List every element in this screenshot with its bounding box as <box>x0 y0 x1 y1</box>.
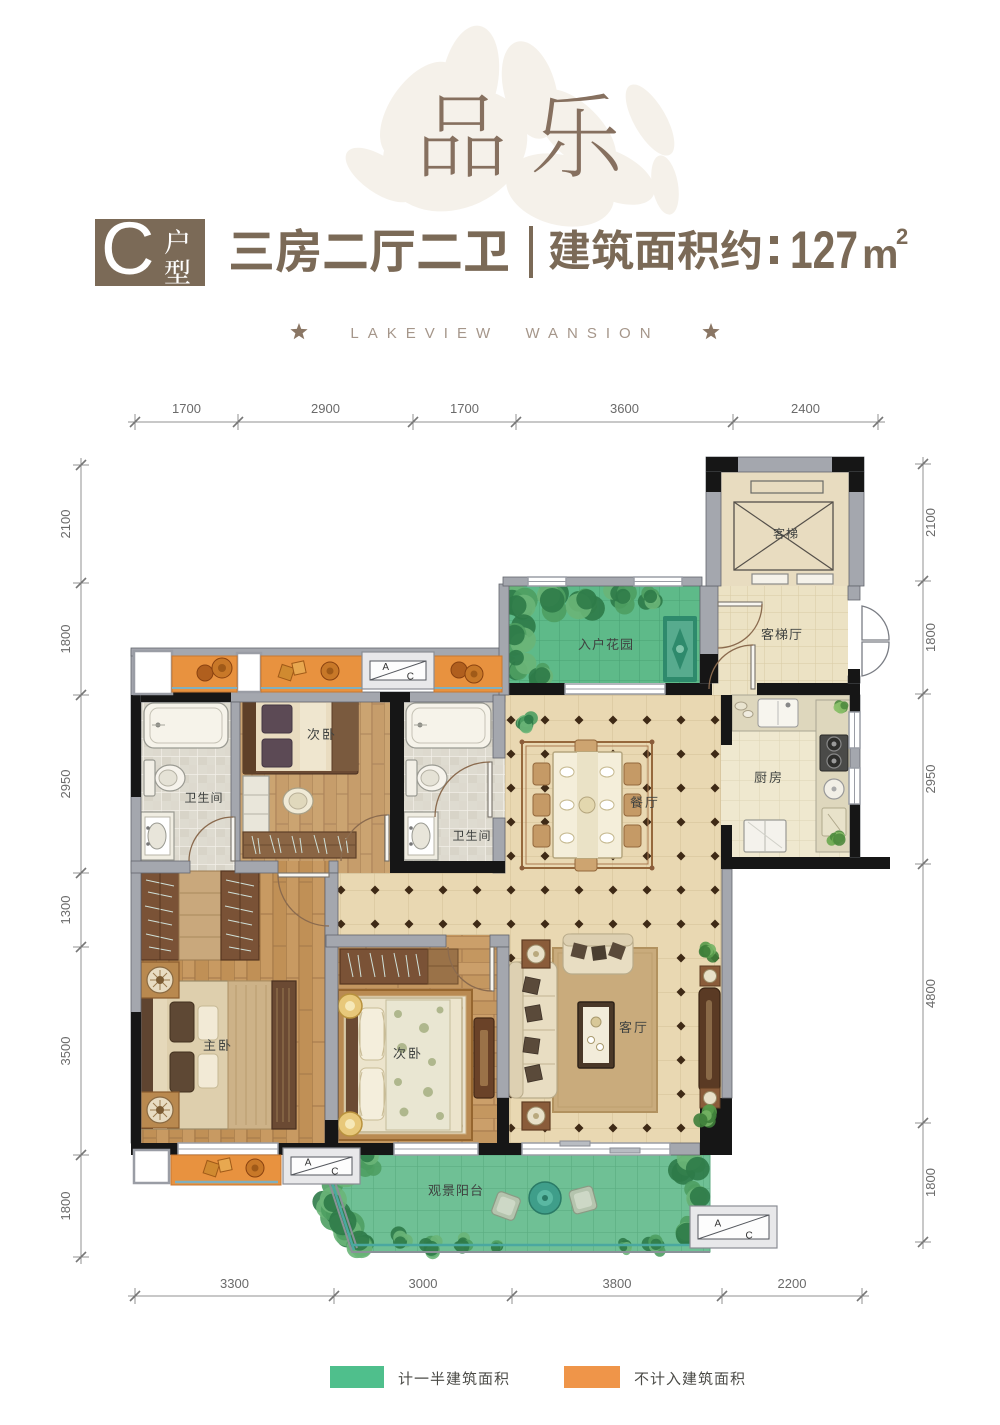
svg-text:3300: 3300 <box>220 1276 249 1291</box>
svg-text:127: 127 <box>790 221 858 280</box>
svg-text:1800: 1800 <box>923 1168 938 1197</box>
svg-text:A: A <box>382 662 389 673</box>
svg-text:m: m <box>862 231 898 277</box>
svg-text:C: C <box>101 207 154 290</box>
svg-text:A: A <box>305 1158 312 1169</box>
svg-text:2950: 2950 <box>923 765 938 794</box>
svg-text:C: C <box>746 1230 753 1241</box>
svg-text:4800: 4800 <box>923 979 938 1008</box>
svg-text:1800: 1800 <box>58 625 73 654</box>
svg-text:2950: 2950 <box>58 770 73 799</box>
svg-text:1300: 1300 <box>58 896 73 925</box>
svg-text:1700: 1700 <box>450 401 479 416</box>
svg-text:2900: 2900 <box>311 401 340 416</box>
svg-text:2: 2 <box>896 224 908 249</box>
svg-text:2100: 2100 <box>923 508 938 537</box>
svg-text:1700: 1700 <box>172 401 201 416</box>
svg-text:C: C <box>407 671 414 682</box>
svg-text:3800: 3800 <box>603 1276 632 1291</box>
svg-text:3500: 3500 <box>58 1037 73 1066</box>
svg-text:A: A <box>715 1219 722 1230</box>
svg-text:2100: 2100 <box>58 510 73 539</box>
svg-text:3000: 3000 <box>409 1276 438 1291</box>
svg-text:2200: 2200 <box>778 1276 807 1291</box>
svg-text:1800: 1800 <box>923 623 938 652</box>
svg-text:1800: 1800 <box>58 1192 73 1221</box>
svg-text:2400: 2400 <box>791 401 820 416</box>
svg-text:LAKEVIEW WANSION: LAKEVIEW WANSION <box>350 325 659 342</box>
svg-text:3600: 3600 <box>610 401 639 416</box>
svg-text:C: C <box>331 1166 338 1177</box>
